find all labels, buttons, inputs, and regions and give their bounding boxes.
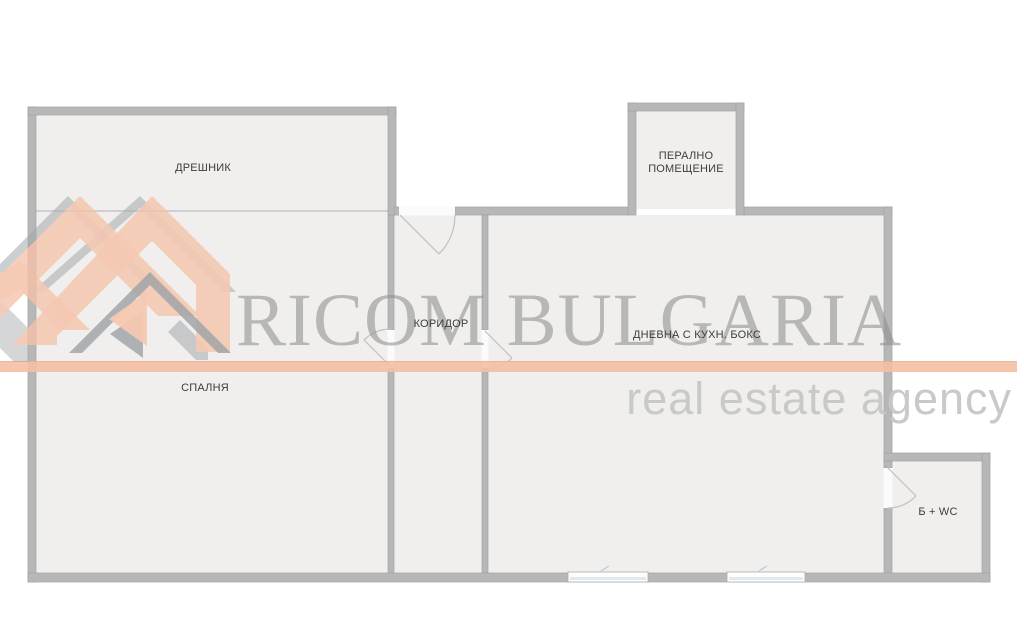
room-label-corridor: КОРИДОР xyxy=(396,318,486,331)
room-label-living: ДНЕВНА С КУХН. БОКС xyxy=(597,329,797,342)
room-label-laundry: ПЕРАЛНО ПОМЕЩЕНИЕ xyxy=(646,150,726,176)
room-label-dressing: ДРЕШНИК xyxy=(140,162,266,175)
watermark-brand-text: RICOM BULGARIA xyxy=(236,283,902,358)
floorplan-page: RICOM BULGARIA real estate agency ДРЕШНИ… xyxy=(0,0,1024,636)
room-label-bath: Б + WC xyxy=(898,506,978,519)
watermark-tagline-text: real estate agency xyxy=(626,376,1012,421)
room-label-bedroom: СПАЛНЯ xyxy=(140,382,270,395)
